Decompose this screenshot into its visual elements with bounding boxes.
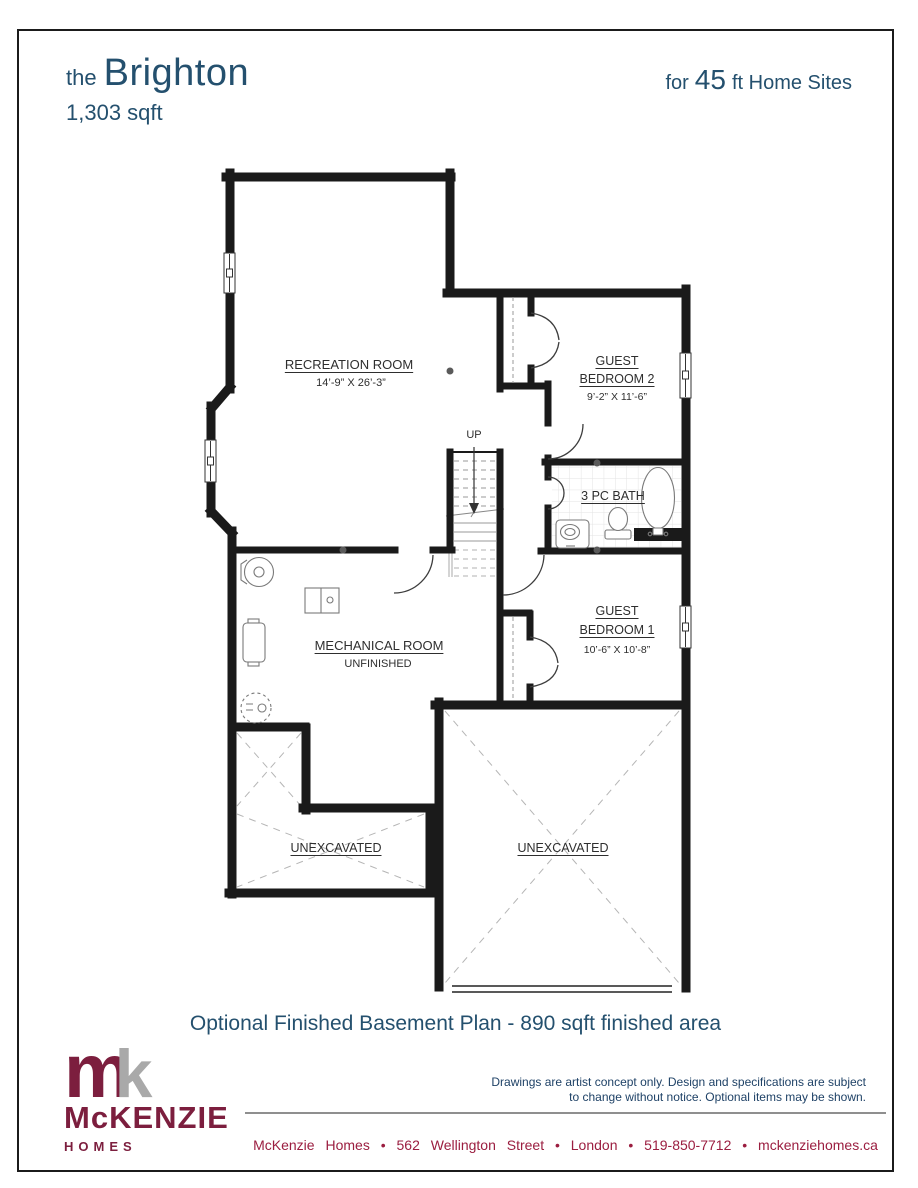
foundation-opening — [451, 984, 672, 995]
floor-plan-drawing — [0, 0, 918, 1188]
bedroom1-label-line1: GUEST — [595, 604, 638, 618]
footer-divider-line — [245, 1112, 886, 1114]
bath-vanity-sink — [556, 520, 589, 548]
window-bedroom1 — [680, 606, 691, 648]
contact-info: McKenzie Homes • 562 Wellington Street •… — [245, 1137, 886, 1153]
window-bedroom2 — [680, 353, 691, 398]
mckenzie-homes-logo: m k McKENZIE HOMES — [64, 1036, 229, 1154]
bedroom2-label-line2: BEDROOM 2 — [579, 372, 654, 386]
mechanical-room-label: MECHANICAL ROOM — [315, 639, 444, 654]
bedroom1-dims: 10’-6” X 10’-8” — [584, 644, 651, 656]
water-tank — [243, 619, 265, 666]
recreation-room-dims: 14’-9” X 26’-3” — [316, 377, 386, 390]
staircase — [446, 447, 504, 577]
floor-plan-page: the Brighton 1,303 sqft for 45 ft Home S… — [0, 0, 918, 1188]
stairs-up-label: UP — [466, 429, 481, 442]
logo-k-glyph: k — [115, 1048, 153, 1101]
bedroom1-closet-bifold — [530, 637, 558, 687]
bedroom1-label-line2: BEDROOM 1 — [579, 623, 654, 637]
window-bay — [205, 440, 216, 482]
bedroom2-label-line1: GUEST — [595, 354, 638, 368]
logo-homes-text: HOMES — [64, 1139, 229, 1154]
mechanical-room-sub: UNFINISHED — [344, 658, 411, 671]
exterior-walls — [211, 173, 686, 988]
disclaimer-text: Drawings are artist concept only. Design… — [491, 1075, 866, 1106]
furnace — [305, 588, 339, 613]
bedroom2-dims: 9’-2” X 11’-6” — [587, 391, 647, 403]
bath-label: 3 PC BATH — [581, 489, 645, 503]
bedroom2-closet-bifold — [531, 313, 559, 368]
disclaimer-line2: to change without notice. Optional items… — [491, 1090, 866, 1105]
unexcavated-left-label: UNEXCAVATED — [291, 841, 382, 855]
sump-pump — [241, 693, 271, 723]
mechanical-room-door — [394, 555, 433, 593]
bedroom2-door — [548, 424, 583, 459]
unexcavated-right-label: UNEXCAVATED — [518, 841, 609, 855]
window-rec-room-left — [224, 253, 235, 293]
water-heater — [241, 558, 274, 587]
plan-caption: Optional Finished Basement Plan - 890 sq… — [17, 1012, 894, 1036]
recreation-room-label: RECREATION ROOM — [285, 358, 413, 373]
bedroom1-door — [503, 555, 544, 595]
disclaimer-line1: Drawings are artist concept only. Design… — [491, 1075, 866, 1090]
